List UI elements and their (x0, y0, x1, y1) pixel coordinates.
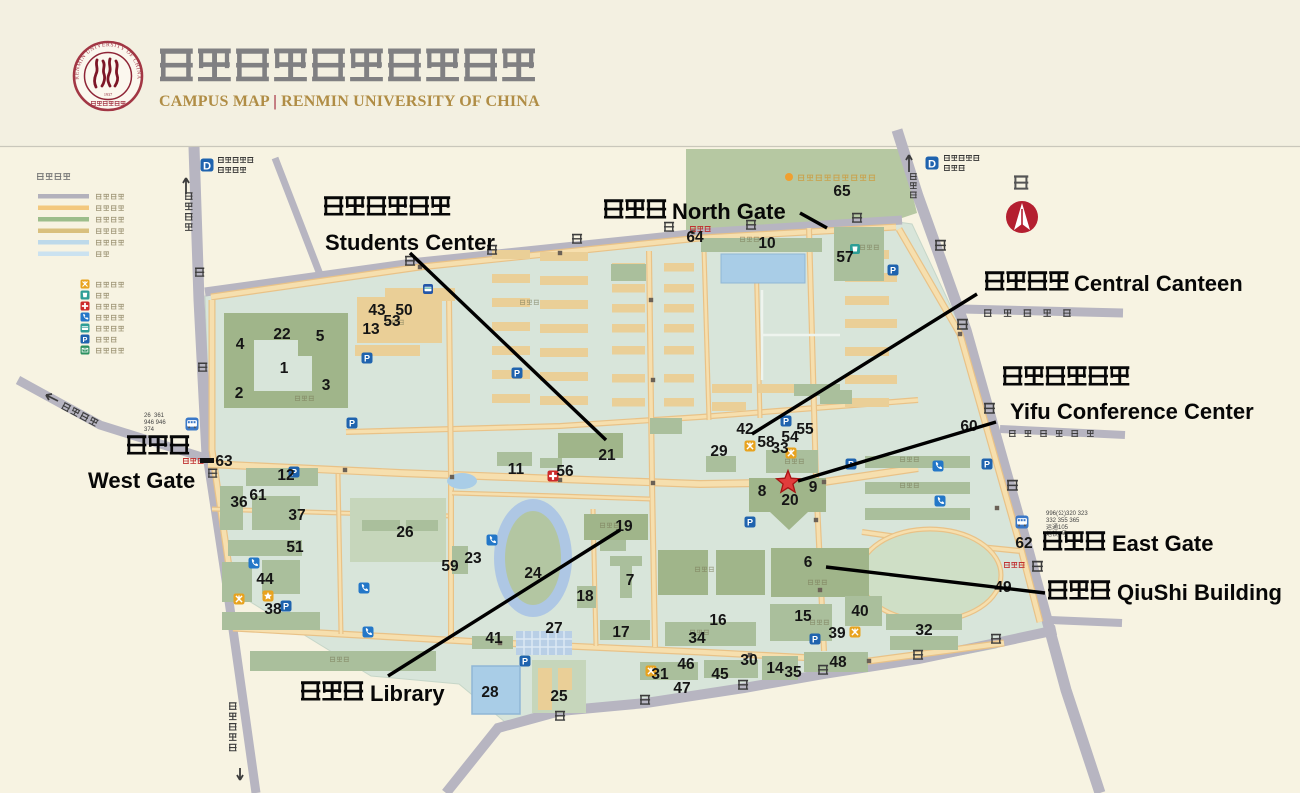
svg-text:16: 16 (709, 612, 727, 629)
svg-text:37: 37 (288, 507, 305, 524)
svg-text:56: 56 (556, 463, 574, 480)
svg-text:14: 14 (766, 660, 784, 677)
svg-text:13: 13 (362, 321, 380, 338)
svg-text:32: 32 (915, 622, 932, 639)
svg-text:51: 51 (286, 539, 304, 556)
svg-text:运通105: 运通105 (1046, 523, 1069, 531)
svg-text:29: 29 (710, 443, 728, 460)
svg-text:5: 5 (316, 328, 325, 345)
svg-text:55: 55 (796, 421, 814, 438)
svg-text:P: P (83, 335, 88, 344)
svg-text:42: 42 (736, 421, 753, 438)
svg-text:996(公)320 323: 996(公)320 323 (1046, 510, 1088, 517)
svg-text:41: 41 (485, 630, 503, 647)
svg-text:44: 44 (256, 571, 274, 588)
svg-text:36: 36 (230, 494, 248, 511)
svg-text:31: 31 (651, 666, 669, 683)
svg-text:Students Center: Students Center (325, 230, 495, 255)
svg-text:D: D (203, 160, 211, 172)
svg-text:P: P (349, 418, 355, 428)
svg-text:8: 8 (758, 483, 767, 500)
svg-text:48: 48 (829, 654, 847, 671)
svg-text:22: 22 (273, 326, 290, 343)
svg-text:P: P (522, 656, 528, 666)
svg-text:61: 61 (249, 487, 267, 504)
svg-text:25: 25 (550, 688, 568, 705)
svg-text:39: 39 (828, 625, 846, 642)
svg-text:North Gate: North Gate (672, 199, 786, 224)
svg-text:15: 15 (794, 608, 812, 625)
svg-text:57: 57 (836, 249, 853, 266)
svg-text:27: 27 (545, 620, 562, 637)
svg-text:Central Canteen: Central Canteen (1074, 271, 1243, 296)
svg-text:1: 1 (280, 360, 289, 377)
svg-text:21: 21 (598, 447, 616, 464)
svg-text:2: 2 (235, 385, 244, 402)
svg-text:QiuShi Building: QiuShi Building (1117, 580, 1282, 605)
svg-text:P: P (783, 416, 789, 426)
svg-text:34: 34 (688, 630, 706, 647)
svg-text:26 361: 26 361 (144, 413, 165, 419)
svg-text:45: 45 (711, 666, 729, 683)
svg-text:West Gate: West Gate (88, 468, 195, 493)
svg-text:1937: 1937 (104, 92, 112, 97)
svg-text:P: P (890, 265, 896, 275)
svg-text:Yifu Conference Center: Yifu Conference Center (1010, 399, 1254, 424)
svg-text:18: 18 (576, 588, 594, 605)
svg-text:64: 64 (686, 229, 704, 246)
svg-text:59: 59 (441, 558, 459, 575)
svg-text:30: 30 (740, 652, 757, 669)
svg-text:46: 46 (677, 656, 695, 673)
svg-text:20: 20 (781, 492, 798, 509)
svg-text:374: 374 (144, 427, 155, 433)
svg-text:65: 65 (833, 183, 851, 200)
svg-text:63: 63 (215, 453, 233, 470)
svg-text:28: 28 (481, 684, 499, 701)
svg-text:P: P (812, 634, 818, 644)
svg-text:Library: Library (370, 681, 445, 706)
svg-text:17: 17 (612, 624, 629, 641)
svg-text:40: 40 (851, 603, 868, 620)
svg-text:D: D (928, 158, 936, 170)
svg-text:38: 38 (264, 601, 282, 618)
svg-text:23: 23 (464, 550, 482, 567)
svg-text:CAMPUS MAP | RENMIN UNIVERSITY: CAMPUS MAP | RENMIN UNIVERSITY OF CHINA (159, 93, 540, 110)
svg-text:10: 10 (758, 235, 775, 252)
svg-text:35: 35 (784, 664, 802, 681)
svg-text:P: P (514, 368, 520, 378)
svg-text:P: P (364, 353, 370, 363)
svg-text:26: 26 (396, 524, 414, 541)
svg-text:33: 33 (771, 440, 789, 457)
svg-text:P: P (747, 517, 753, 527)
svg-text:11: 11 (508, 461, 525, 478)
svg-text:62: 62 (1015, 535, 1032, 552)
svg-text:P: P (283, 601, 289, 611)
svg-text:332 355 365: 332 355 365 (1046, 518, 1080, 524)
svg-text:9: 9 (809, 479, 818, 496)
svg-text:7: 7 (626, 572, 635, 589)
svg-text:3: 3 (322, 377, 331, 394)
svg-text:12: 12 (277, 467, 294, 484)
svg-text:4: 4 (236, 336, 245, 353)
svg-text:47: 47 (673, 680, 690, 697)
svg-text:East Gate: East Gate (1112, 531, 1214, 556)
svg-text:946 946: 946 946 (144, 420, 166, 426)
svg-text:P: P (984, 459, 990, 469)
svg-text:53: 53 (383, 313, 401, 330)
svg-text:6: 6 (804, 554, 813, 571)
